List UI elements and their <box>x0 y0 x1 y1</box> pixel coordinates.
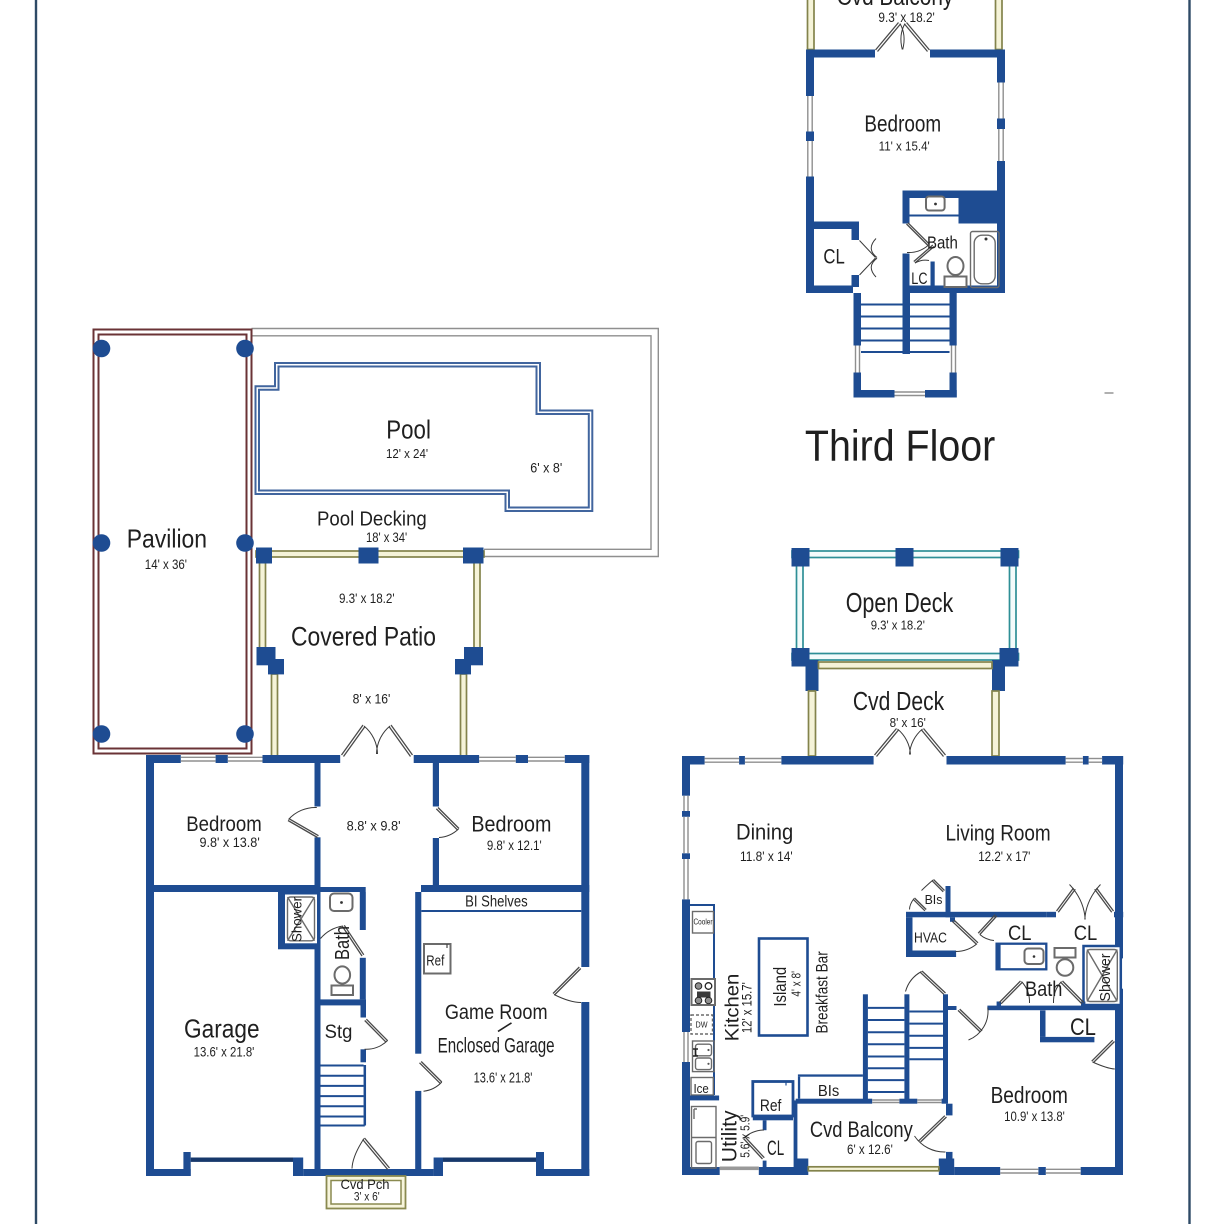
svg-text:Shower: Shower <box>1097 953 1114 1001</box>
svg-text:6' x 8': 6' x 8' <box>530 461 562 476</box>
svg-text:Bedroom: Bedroom <box>991 1082 1068 1108</box>
svg-text:8' x 16': 8' x 16' <box>353 692 391 707</box>
svg-text:9.3' x 18.2': 9.3' x 18.2' <box>339 591 395 606</box>
svg-text:Open Deck: Open Deck <box>846 587 954 618</box>
svg-text:Third Floor: Third Floor <box>805 422 995 471</box>
svg-text:Shower: Shower <box>290 897 305 942</box>
svg-text:Living Room: Living Room <box>946 821 1051 846</box>
svg-text:HVAC: HVAC <box>914 931 947 947</box>
svg-text:8.8' x 9.8': 8.8' x 9.8' <box>347 819 401 834</box>
svg-text:12' x 15.7': 12' x 15.7' <box>740 982 755 1033</box>
svg-text:Game Room: Game Room <box>445 1001 548 1024</box>
svg-text:9.8' x 12.1': 9.8' x 12.1' <box>487 838 542 853</box>
svg-text:Cvd Deck: Cvd Deck <box>853 688 945 716</box>
svg-text:CL: CL <box>1008 921 1032 945</box>
svg-text:5.6' x 5.9': 5.6' x 5.9' <box>738 1115 753 1158</box>
svg-text:Ref: Ref <box>760 1097 782 1115</box>
svg-text:Ref: Ref <box>426 954 445 970</box>
svg-text:Pool Decking: Pool Decking <box>317 509 427 531</box>
svg-text:9.8' x 13.8': 9.8' x 13.8' <box>199 835 259 850</box>
svg-text:12' x 24': 12' x 24' <box>386 446 428 461</box>
svg-text:3' x 6': 3' x 6' <box>354 1190 380 1204</box>
svg-text:CL: CL <box>823 245 845 269</box>
svg-text:4' x 8': 4' x 8' <box>790 971 804 997</box>
svg-text:13.6' x 21.8': 13.6' x 21.8' <box>194 1044 255 1060</box>
svg-text:18' x 34': 18' x 34' <box>366 530 407 545</box>
svg-text:6' x 12.6': 6' x 12.6' <box>847 1142 893 1157</box>
svg-text:Ice: Ice <box>693 1081 708 1096</box>
svg-text:Island: Island <box>770 967 790 1007</box>
svg-text:DW: DW <box>696 1021 708 1030</box>
svg-text:Pavilion: Pavilion <box>127 525 207 553</box>
svg-text:11' x 15.4': 11' x 15.4' <box>879 139 930 154</box>
svg-text:CL: CL <box>1070 1014 1096 1041</box>
svg-text:Bedroom: Bedroom <box>864 110 941 136</box>
svg-text:BI Shelves: BI Shelves <box>465 894 528 911</box>
svg-text:11.8' x 14': 11.8' x 14' <box>740 848 793 864</box>
svg-text:Breakfast Bar: Breakfast Bar <box>813 951 832 1034</box>
svg-text:Bath: Bath <box>1025 978 1063 1001</box>
svg-text:Pool: Pool <box>386 417 431 445</box>
svg-text:BIs: BIs <box>818 1083 839 1100</box>
svg-text:Bath: Bath <box>927 233 958 253</box>
svg-text:Cvd Balcony: Cvd Balcony <box>810 1117 914 1142</box>
svg-text:BIs: BIs <box>925 892 943 907</box>
svg-text:CL: CL <box>1074 921 1098 945</box>
svg-text:Covered Patio: Covered Patio <box>291 622 436 652</box>
svg-text:Dining: Dining <box>736 820 793 845</box>
svg-text:Cooler: Cooler <box>694 918 713 927</box>
svg-text:Garage: Garage <box>184 1014 260 1044</box>
svg-text:14' x 36': 14' x 36' <box>145 557 187 572</box>
svg-text:Enclosed Garage: Enclosed Garage <box>438 1034 555 1057</box>
svg-text:Stg: Stg <box>325 1022 353 1043</box>
svg-text:13.6' x 21.8': 13.6' x 21.8' <box>474 1070 533 1086</box>
svg-text:Bath: Bath <box>332 926 354 960</box>
svg-text:10.9' x 13.8': 10.9' x 13.8' <box>1004 1109 1065 1124</box>
svg-text:9.3' x 18.2': 9.3' x 18.2' <box>878 9 934 25</box>
svg-text:9.3' x 18.2': 9.3' x 18.2' <box>871 618 925 632</box>
svg-text:8' x 16': 8' x 16' <box>890 716 926 730</box>
svg-text:LC: LC <box>911 269 927 288</box>
svg-text:CL: CL <box>767 1137 784 1160</box>
svg-text:12.2' x 17': 12.2' x 17' <box>978 848 1030 864</box>
svg-text:Bedroom: Bedroom <box>186 813 262 836</box>
svg-text:Bedroom: Bedroom <box>471 812 551 837</box>
